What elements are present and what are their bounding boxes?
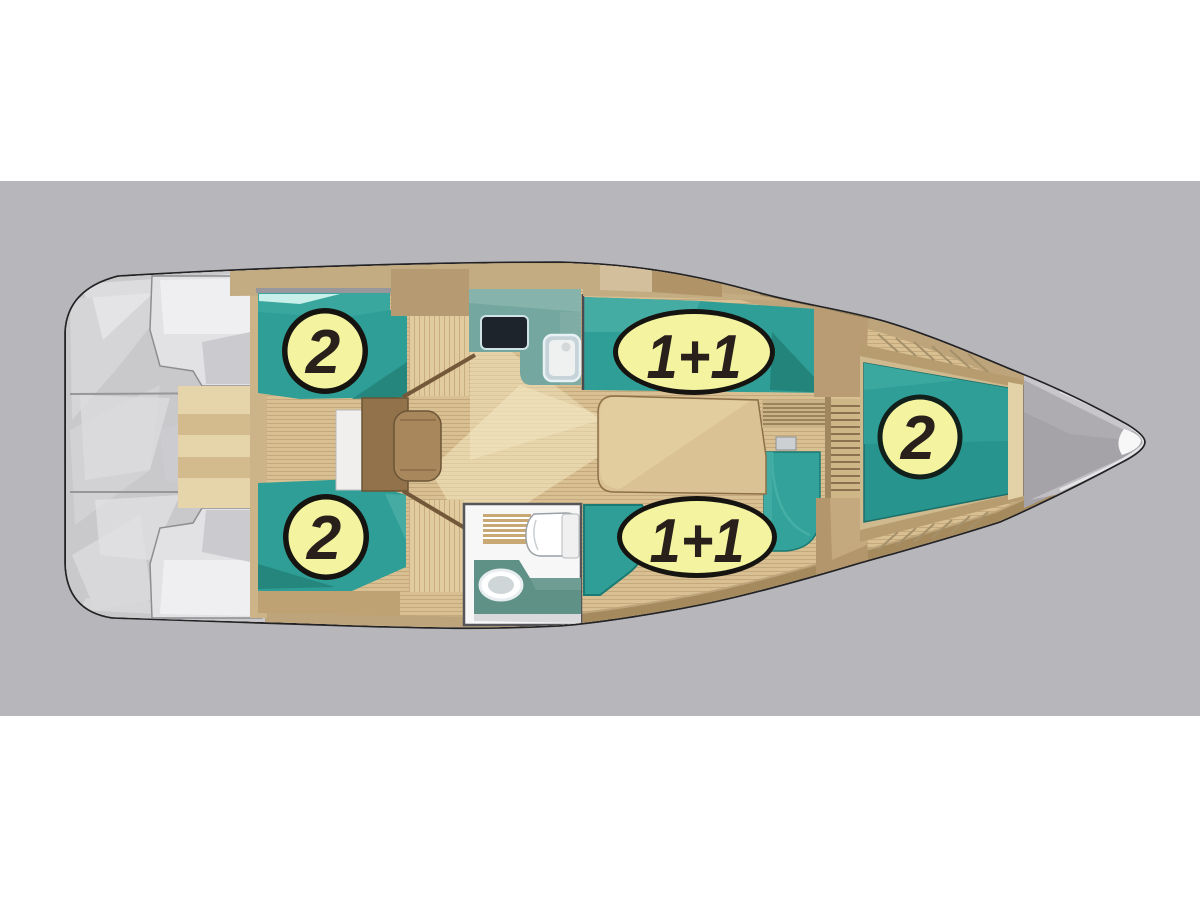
svg-text:1+1: 1+1 [650, 507, 745, 576]
svg-text:2: 2 [900, 404, 935, 473]
svg-text:1+1: 1+1 [647, 323, 742, 392]
svg-text:2: 2 [306, 504, 341, 573]
svg-text:2: 2 [305, 318, 340, 387]
